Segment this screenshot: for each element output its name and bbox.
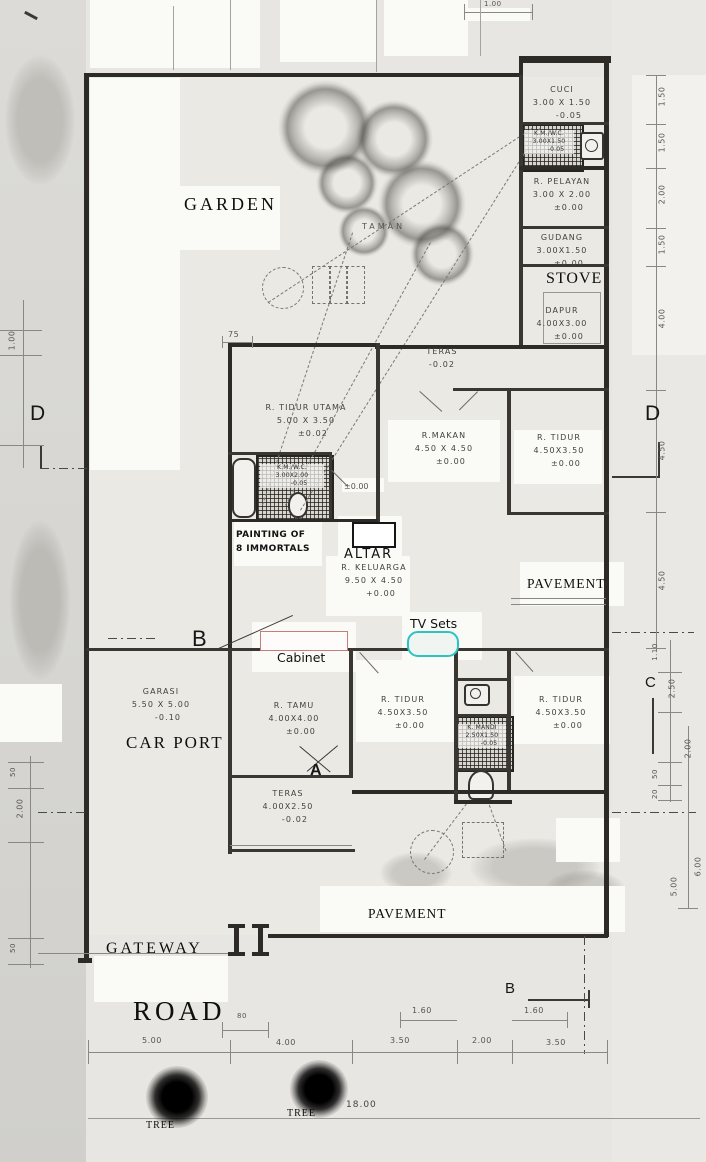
step-line — [511, 598, 606, 599]
room-label-makan: R.MAKAN 4.50 X 4.50 ±0.00 — [392, 430, 496, 468]
tv-box — [407, 631, 459, 657]
wall — [519, 226, 609, 229]
room-size: 4.00X2.50 — [242, 801, 334, 814]
dimension-line — [670, 640, 671, 802]
wall — [454, 714, 510, 717]
bathtub-icon — [232, 458, 256, 518]
altar-level-label: ±0.00 — [344, 482, 369, 491]
dimension-line — [222, 1030, 268, 1031]
dim-tick — [532, 4, 533, 20]
dim-tick — [646, 390, 666, 391]
guide-line — [230, 0, 231, 70]
dim-label: 1.00 — [484, 0, 502, 8]
wall — [228, 648, 232, 854]
wall — [329, 452, 332, 522]
yard-circle — [410, 830, 454, 874]
room-level: ±0.00 — [392, 456, 496, 469]
dim-tick — [658, 712, 682, 713]
dim-tick — [8, 938, 44, 939]
section-line — [612, 632, 694, 633]
dim-tick — [230, 1040, 231, 1064]
dim-tick — [252, 336, 253, 348]
step-line — [230, 845, 352, 846]
dim-tick — [268, 1022, 269, 1038]
room-name: R. TAMU — [248, 700, 340, 713]
wall — [228, 849, 355, 852]
wall — [376, 343, 380, 523]
room-name: R. PELAYAN — [516, 176, 608, 189]
wall — [507, 390, 511, 512]
room-size: 4.00X4.00 — [248, 713, 340, 726]
garden-cell — [346, 266, 365, 304]
whiteout — [90, 78, 180, 470]
guide-line — [376, 0, 377, 72]
dim-label: 1.00 — [7, 331, 16, 351]
section-line — [40, 446, 42, 468]
room-name: R. KELUARGA — [330, 562, 418, 575]
dim-label: 50 — [651, 769, 659, 779]
whiteout — [632, 75, 706, 355]
floor-plan-scan: CUCI 3.00 X 1.50 -0.05 K.M./W.C. 3.00X1.… — [0, 0, 706, 1162]
room-level: ±0.00 — [516, 331, 608, 344]
dim-label: 20 — [651, 789, 659, 799]
wall — [228, 343, 232, 652]
taman-label: TAMAN — [362, 222, 405, 231]
dim-tick — [8, 964, 44, 965]
dim-tick — [512, 1040, 513, 1064]
dim-label: 1.50 — [657, 133, 666, 153]
room-size: 2.50X1.50 — [458, 732, 506, 740]
dim-tick — [222, 336, 223, 348]
dim-tick — [8, 842, 44, 843]
gate-post-icon — [252, 952, 269, 956]
dimension-line — [88, 1052, 608, 1053]
street-tree-icon — [146, 1066, 208, 1128]
room-level: -0.05 — [260, 480, 324, 488]
dim-tick — [567, 1012, 568, 1028]
room-name: GARASI — [118, 686, 204, 699]
street-tree-icon — [290, 1060, 348, 1118]
room-level: -0.02 — [404, 359, 480, 372]
dim-label: 1.60 — [412, 1006, 432, 1015]
dim-label: 1.50 — [657, 235, 666, 255]
dim-label: 75 — [228, 330, 239, 339]
dim-label: 4.50 — [657, 571, 666, 591]
dim-label: 5.00 — [142, 1036, 162, 1045]
dim-tick — [678, 908, 698, 909]
whiteout — [0, 684, 62, 742]
dim-label: 5.00 — [669, 877, 678, 897]
section-line — [612, 476, 658, 478]
room-label-tidur-bm: R. TIDUR 4.50X3.50 ±0.00 — [362, 694, 444, 732]
room-name: R. TIDUR — [520, 694, 602, 707]
room-size: 3.00X2.00 — [260, 472, 324, 480]
room-label-tidur-utama: R. TIDUR UTAMA 5.00 X 3.50 ±0.02 — [246, 402, 366, 440]
dim-tick — [8, 762, 44, 763]
pavement-bottom-label: PAVEMENT — [368, 906, 447, 922]
room-level: -0.02 — [242, 814, 334, 827]
section-line — [108, 638, 156, 639]
room-name: GUDANG — [516, 232, 608, 245]
dim-tick — [88, 1040, 89, 1064]
dimension-line — [23, 300, 24, 468]
wall — [86, 73, 522, 77]
dim-tick — [457, 1040, 458, 1064]
room-label-tidur-tr: R. TIDUR 4.50X3.50 ±0.00 — [518, 432, 600, 470]
room-level: -0.05 — [524, 146, 574, 154]
tree-sketch — [410, 222, 474, 286]
room-size: 4.50X3.50 — [518, 445, 600, 458]
scan-blotch — [5, 55, 75, 185]
room-size: 4.50 X 4.50 — [392, 443, 496, 456]
room-size: 9.50 X 4.50 — [330, 575, 418, 588]
dim-tick — [0, 355, 42, 356]
dim-tick — [658, 800, 682, 801]
dim-label: 4.00 — [276, 1038, 296, 1047]
wall — [519, 56, 611, 63]
dim-label: 50 — [9, 767, 17, 777]
painting-line2: 8 IMMORTALS — [236, 542, 310, 556]
room-name: R.MAKAN — [392, 430, 496, 443]
dim-label: 4.00 — [657, 309, 666, 329]
room-label-kmwc-master: K.M./W.C. 3.00X2.00 -0.05 — [260, 464, 324, 488]
dim-label: 2.50 — [667, 679, 676, 699]
wall — [228, 452, 332, 455]
section-line — [40, 468, 88, 469]
dim-tick — [646, 124, 666, 125]
dim-tick — [646, 228, 666, 229]
dim-label: 3.50 — [390, 1036, 410, 1045]
room-size: 3.00X1.50 — [524, 138, 574, 146]
section-line — [612, 812, 696, 813]
dim-label: 50 — [9, 943, 17, 953]
wall — [228, 775, 353, 778]
wall — [86, 648, 228, 651]
guide-line — [173, 6, 174, 70]
dim-label: 4.50 — [657, 441, 666, 461]
altar-label: ALTAR — [344, 547, 393, 562]
wall — [78, 958, 92, 963]
room-size: 3.00 X 2.00 — [516, 189, 608, 202]
room-level: +0.00 — [330, 588, 418, 601]
room-label-gudang: GUDANG 3.00X1.50 ±0.00 — [516, 232, 608, 270]
dim-tick — [352, 1040, 353, 1064]
room-level: ±0.00 — [248, 726, 340, 739]
marker-a: A — [310, 762, 322, 780]
room-size: 3.00X1.50 — [516, 245, 608, 258]
dim-tick — [658, 762, 682, 763]
whiteout — [384, 0, 468, 56]
dim-label: 1.60 — [524, 1006, 544, 1015]
gate-post-icon — [228, 952, 245, 956]
section-line — [652, 698, 654, 754]
room-size: 4.50X3.50 — [520, 707, 602, 720]
dimension-line — [656, 75, 657, 650]
room-level: ±0.00 — [520, 720, 602, 733]
wall — [519, 122, 609, 125]
wall — [454, 800, 512, 804]
road-label: ROAD — [133, 996, 226, 1027]
room-level: ±0.00 — [516, 258, 608, 271]
room-level: -0.05 — [458, 740, 506, 748]
room-name: CUCI — [516, 84, 608, 97]
dim-tick — [658, 785, 682, 786]
room-name: K. MANDI — [458, 724, 506, 732]
section-line — [38, 812, 86, 813]
altar-box — [352, 522, 396, 548]
marker-b-top: B — [192, 626, 207, 652]
stove-label: STOVE — [546, 270, 602, 288]
dim-tick — [8, 788, 44, 789]
wall — [349, 648, 353, 778]
dim-tick — [0, 330, 42, 331]
marker-b-bottom: B — [505, 980, 515, 997]
room-level: -0.10 — [118, 712, 204, 725]
property-line — [584, 936, 585, 1054]
marker-d-left: D — [30, 402, 45, 426]
room-label-teras-front: TERAS 4.00X2.50 -0.02 — [242, 788, 334, 826]
whiteout — [468, 8, 530, 21]
room-name: R. TIDUR — [518, 432, 600, 445]
step-line — [511, 604, 606, 605]
room-label-tamu: R. TAMU 4.00X4.00 ±0.00 — [248, 700, 340, 738]
room-label-kmwc-service: K.M./W.C. 3.00X1.50 -0.05 — [524, 130, 574, 154]
dim-tick — [400, 1012, 401, 1028]
room-size: 3.00 X 1.50 — [516, 97, 608, 110]
dim-label: 2.00 — [472, 1036, 492, 1045]
section-line — [588, 990, 590, 1008]
room-label-keluarga: R. KELUARGA 9.50 X 4.50 +0.00 — [330, 562, 418, 600]
garden-label: GARDEN — [184, 194, 277, 215]
marker-c: C — [645, 674, 656, 691]
cabinet-box — [260, 631, 348, 651]
dim-label: 2.00 — [15, 799, 24, 819]
room-size: 5.00 X 3.50 — [246, 415, 366, 428]
dimension-line — [400, 1020, 457, 1021]
painting-label: PAINTING OF 8 IMMORTALS — [236, 528, 310, 557]
toilet-icon — [468, 770, 494, 800]
dim-label: 1.50 — [657, 87, 666, 107]
room-size: 5.50 X 5.00 — [118, 699, 204, 712]
room-level: ±0.00 — [362, 720, 444, 733]
wall — [352, 790, 609, 794]
room-label-pelayan: R. PELAYAN 3.00 X 2.00 ±0.00 — [516, 176, 608, 214]
room-name: TERAS — [404, 346, 480, 359]
scan-blotch — [10, 520, 70, 680]
room-name: DAPUR — [516, 305, 608, 318]
dimension-line — [512, 1020, 567, 1021]
wall — [507, 648, 609, 651]
wall — [507, 512, 609, 515]
room-name: K.M./W.C. — [260, 464, 324, 472]
guide-line — [480, 0, 481, 56]
wall — [228, 343, 380, 347]
room-name: TERAS — [242, 788, 334, 801]
wall — [454, 768, 510, 771]
room-label-teras-court: TERAS -0.02 — [404, 346, 480, 372]
dim-label: 2.00 — [657, 185, 666, 205]
wall — [268, 934, 608, 938]
sink-bowl-icon — [470, 688, 481, 699]
whiteout — [90, 0, 260, 68]
room-label-garasi: GARASI 5.50 X 5.00 -0.10 — [118, 686, 204, 724]
whiteout — [320, 886, 625, 932]
room-label-dapur: DAPUR 4.00X3.00 ±0.00 — [516, 305, 608, 343]
pavement-right-label: PAVEMENT — [527, 576, 606, 592]
room-label-tidur-br: R. TIDUR 4.50X3.50 ±0.00 — [520, 694, 602, 732]
dim-tick — [464, 4, 465, 20]
dim-label: 3.50 — [546, 1038, 566, 1047]
dimension-line — [464, 12, 532, 13]
room-size: 4.50X3.50 — [362, 707, 444, 720]
dim-label: 1.10 — [651, 643, 659, 661]
room-size: 4.00X3.00 — [516, 318, 608, 331]
marker-d-right: D — [645, 402, 660, 426]
gateway-label: GATEWAY — [106, 940, 203, 958]
wall — [454, 678, 510, 681]
wall — [84, 73, 89, 963]
room-label-mandi-front: K. MANDI 2.50X1.50 -0.05 — [458, 724, 506, 748]
dim-label: 80 — [237, 1012, 247, 1020]
dim-label: 6.00 — [693, 857, 702, 877]
dim-tick — [646, 512, 666, 513]
cabinet-label: Cabinet — [277, 650, 325, 665]
room-name: R. TIDUR UTAMA — [246, 402, 366, 415]
dim-tick — [607, 1040, 608, 1064]
dim-tick — [646, 75, 666, 76]
room-label-cuci: CUCI 3.00 X 1.50 -0.05 — [516, 84, 608, 122]
room-name: K.M./W.C. — [524, 130, 574, 138]
car-port-label: CAR PORT — [126, 733, 224, 753]
room-level: ±0.02 — [246, 428, 366, 441]
room-level: -0.05 — [516, 110, 608, 123]
whiteout — [280, 0, 376, 62]
washing-machine-drum-icon — [585, 139, 598, 152]
whiteout — [556, 818, 620, 862]
dim-tick — [646, 168, 666, 169]
dim-tick — [646, 266, 666, 267]
tv-sets-label: TV Sets — [410, 616, 457, 631]
painting-line1: PAINTING OF — [236, 528, 310, 542]
dim-label: 2.00 — [683, 739, 692, 759]
section-line — [528, 999, 590, 1001]
road-length-label: 18.00 — [346, 1100, 377, 1110]
dimension-line — [222, 342, 252, 343]
room-level: ±0.00 — [518, 458, 600, 471]
dim-tick — [0, 445, 44, 446]
room-name: R. TIDUR — [362, 694, 444, 707]
room-level: ±0.00 — [516, 202, 608, 215]
dim-tick — [658, 672, 682, 673]
wall — [519, 166, 609, 170]
